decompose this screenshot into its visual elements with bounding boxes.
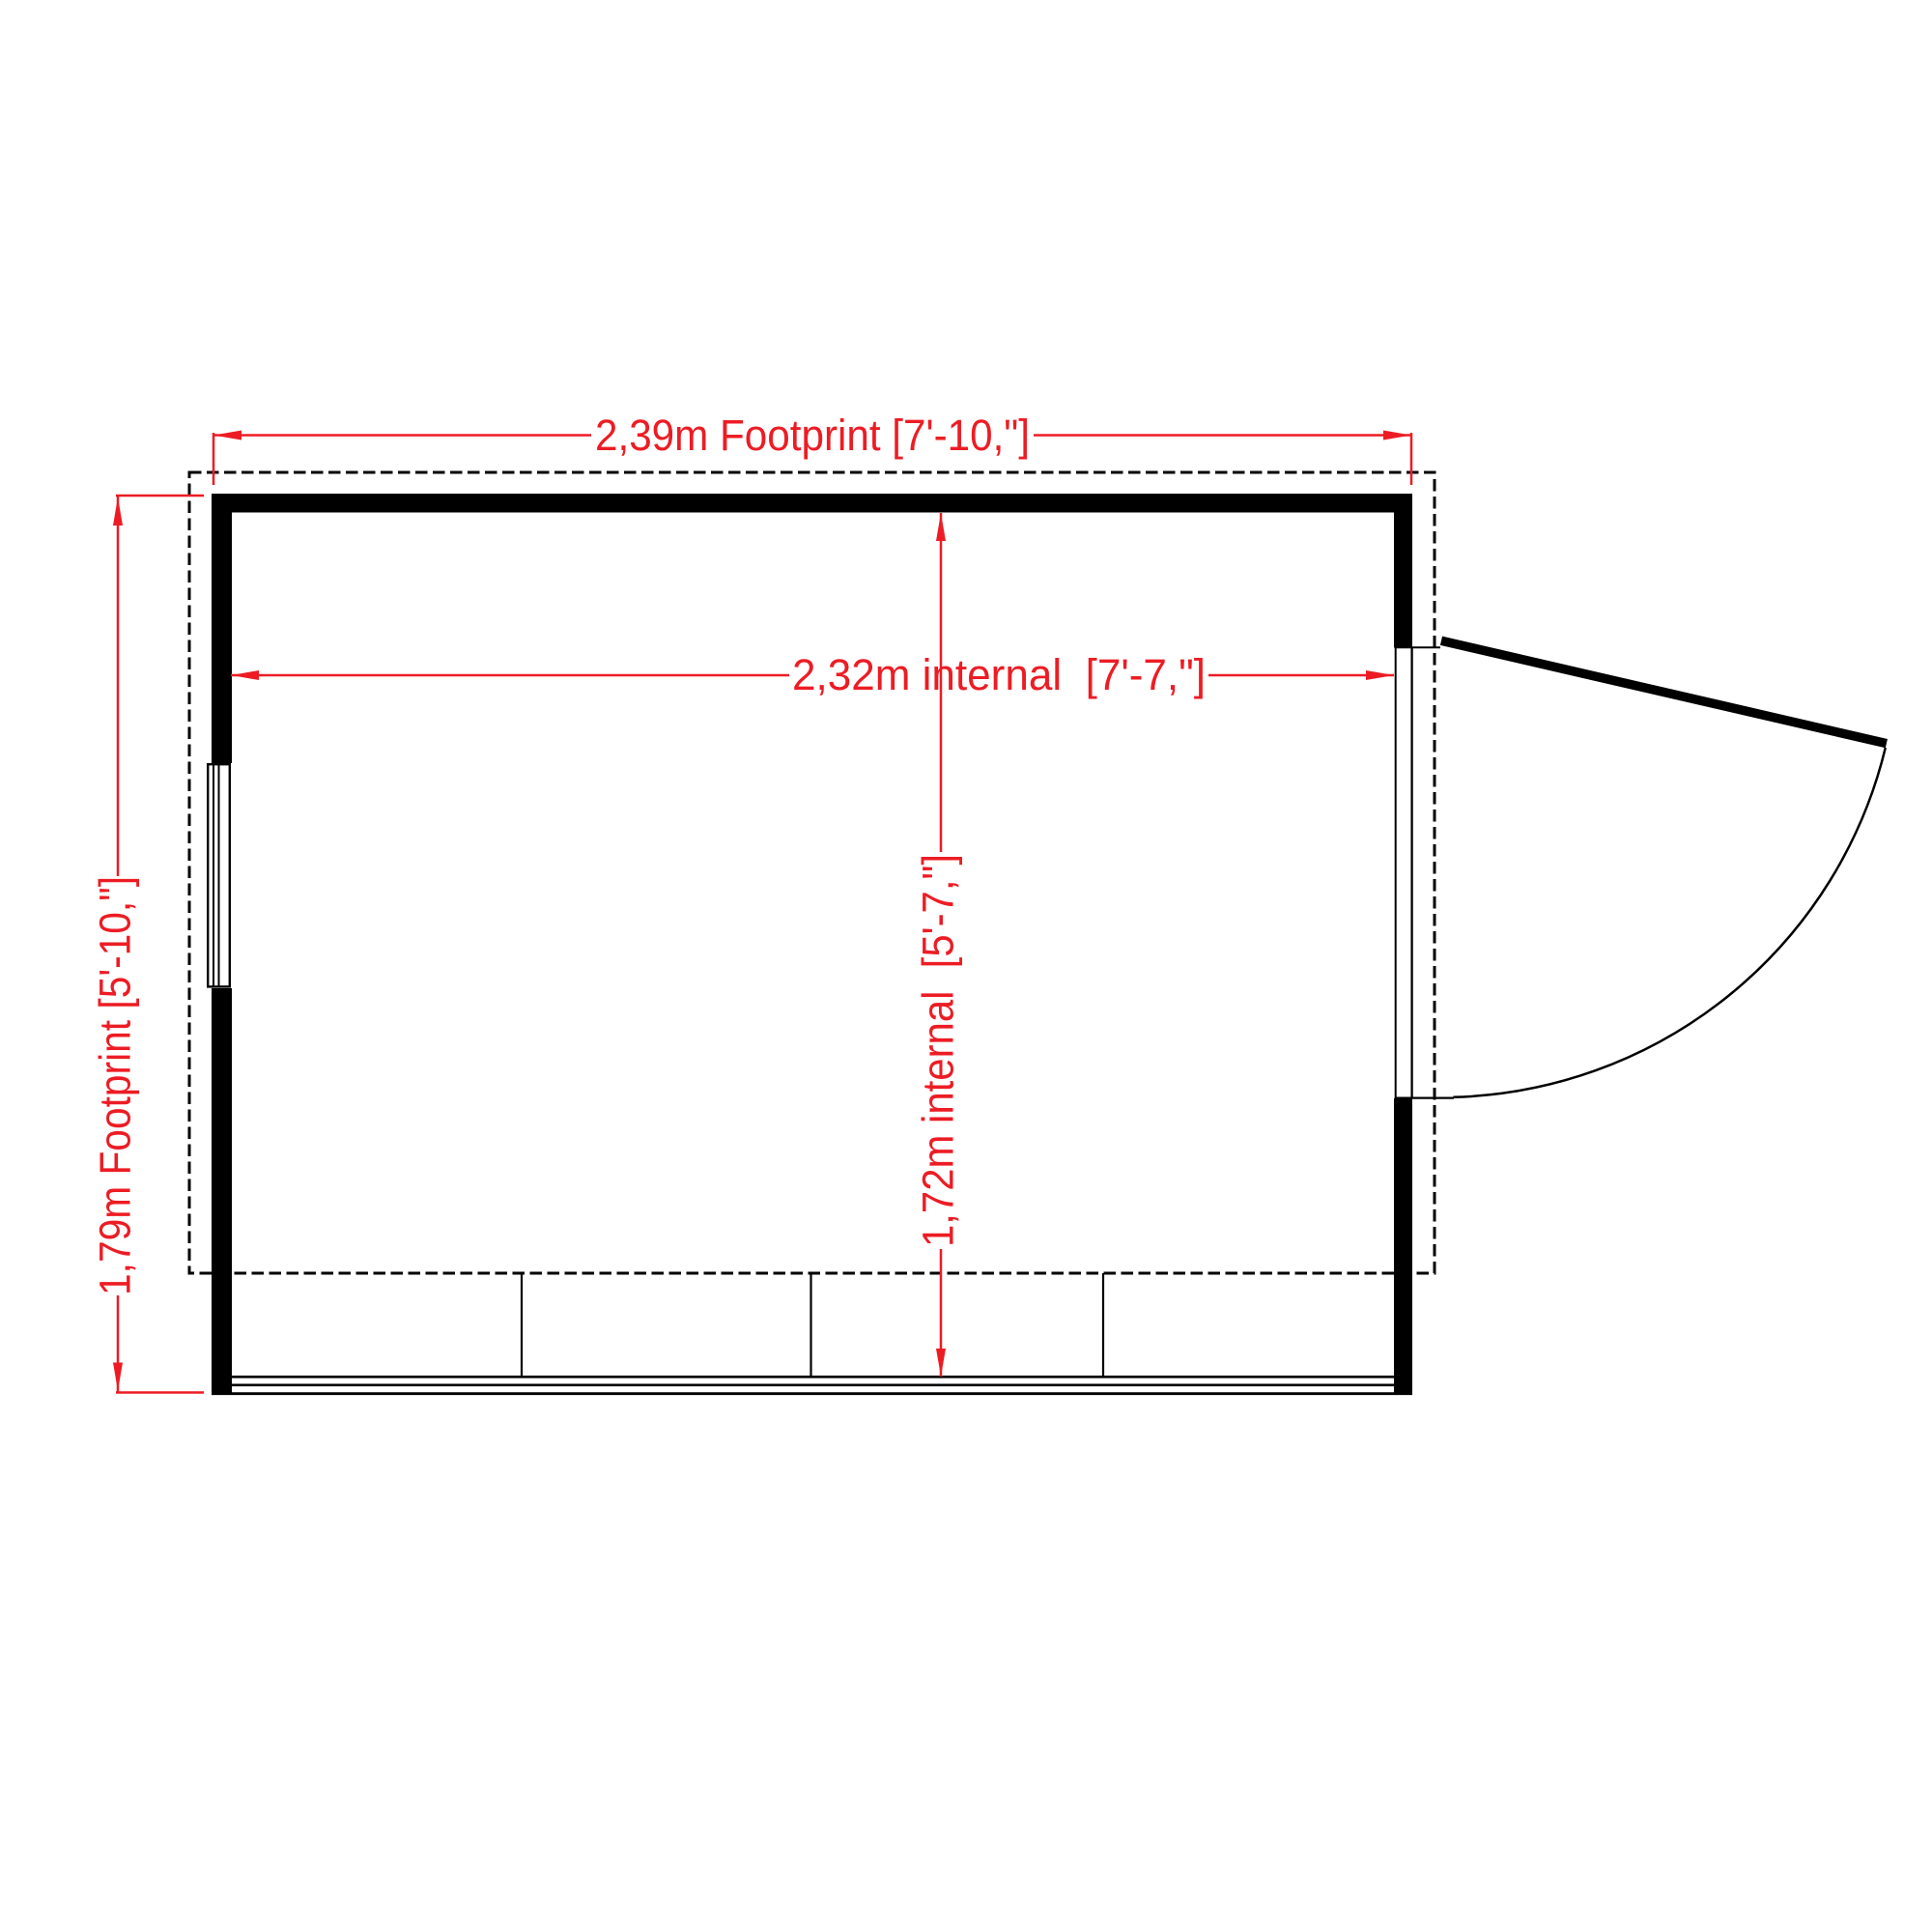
svg-text:2,39m Footprint [7'-10,"]: 2,39m Footprint [7'-10,"]	[595, 411, 1030, 460]
svg-text:1,79m Footprint [5'-10,"]: 1,79m Footprint [5'-10,"]	[91, 876, 140, 1295]
svg-text:2,32m internal [7'-7,"]: 2,32m internal [7'-7,"]	[792, 650, 1206, 699]
svg-text:1,72m internal [5'-7,"]: 1,72m internal [5'-7,"]	[914, 854, 963, 1247]
